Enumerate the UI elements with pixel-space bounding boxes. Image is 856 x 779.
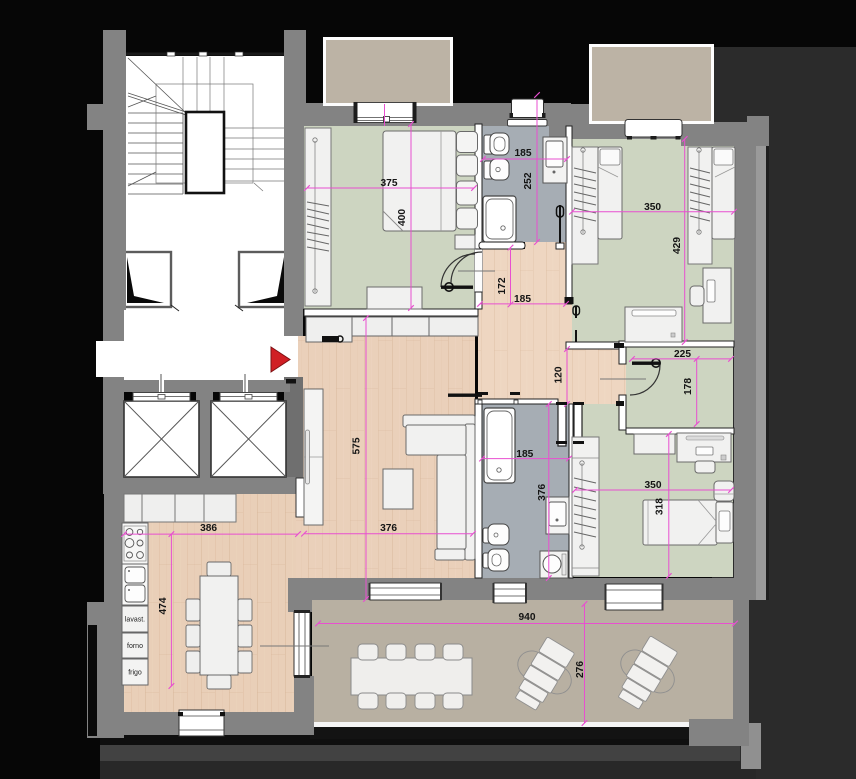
svg-text:318: 318 <box>655 498 666 515</box>
svg-text:376: 376 <box>537 483 548 500</box>
svg-text:276: 276 <box>575 661 586 678</box>
svg-text:172: 172 <box>497 277 508 294</box>
svg-text:120: 120 <box>554 366 565 383</box>
svg-text:185: 185 <box>515 148 532 159</box>
svg-text:185: 185 <box>516 449 533 460</box>
svg-text:forno: forno <box>127 643 143 650</box>
svg-text:178: 178 <box>683 378 694 395</box>
svg-text:lavast.: lavast. <box>125 617 145 624</box>
svg-text:350: 350 <box>645 480 662 491</box>
svg-text:252: 252 <box>523 172 534 189</box>
svg-text:386: 386 <box>200 523 217 534</box>
svg-text:375: 375 <box>381 178 398 189</box>
svg-text:350: 350 <box>644 202 661 213</box>
svg-text:400: 400 <box>397 209 408 226</box>
svg-text:185: 185 <box>514 294 531 305</box>
svg-text:376: 376 <box>380 523 397 534</box>
svg-text:frigo: frigo <box>128 670 142 677</box>
svg-text:940: 940 <box>519 612 536 623</box>
svg-text:474: 474 <box>158 597 169 614</box>
svg-text:575: 575 <box>351 437 362 454</box>
svg-text:225: 225 <box>674 349 691 360</box>
svg-text:429: 429 <box>672 237 683 254</box>
